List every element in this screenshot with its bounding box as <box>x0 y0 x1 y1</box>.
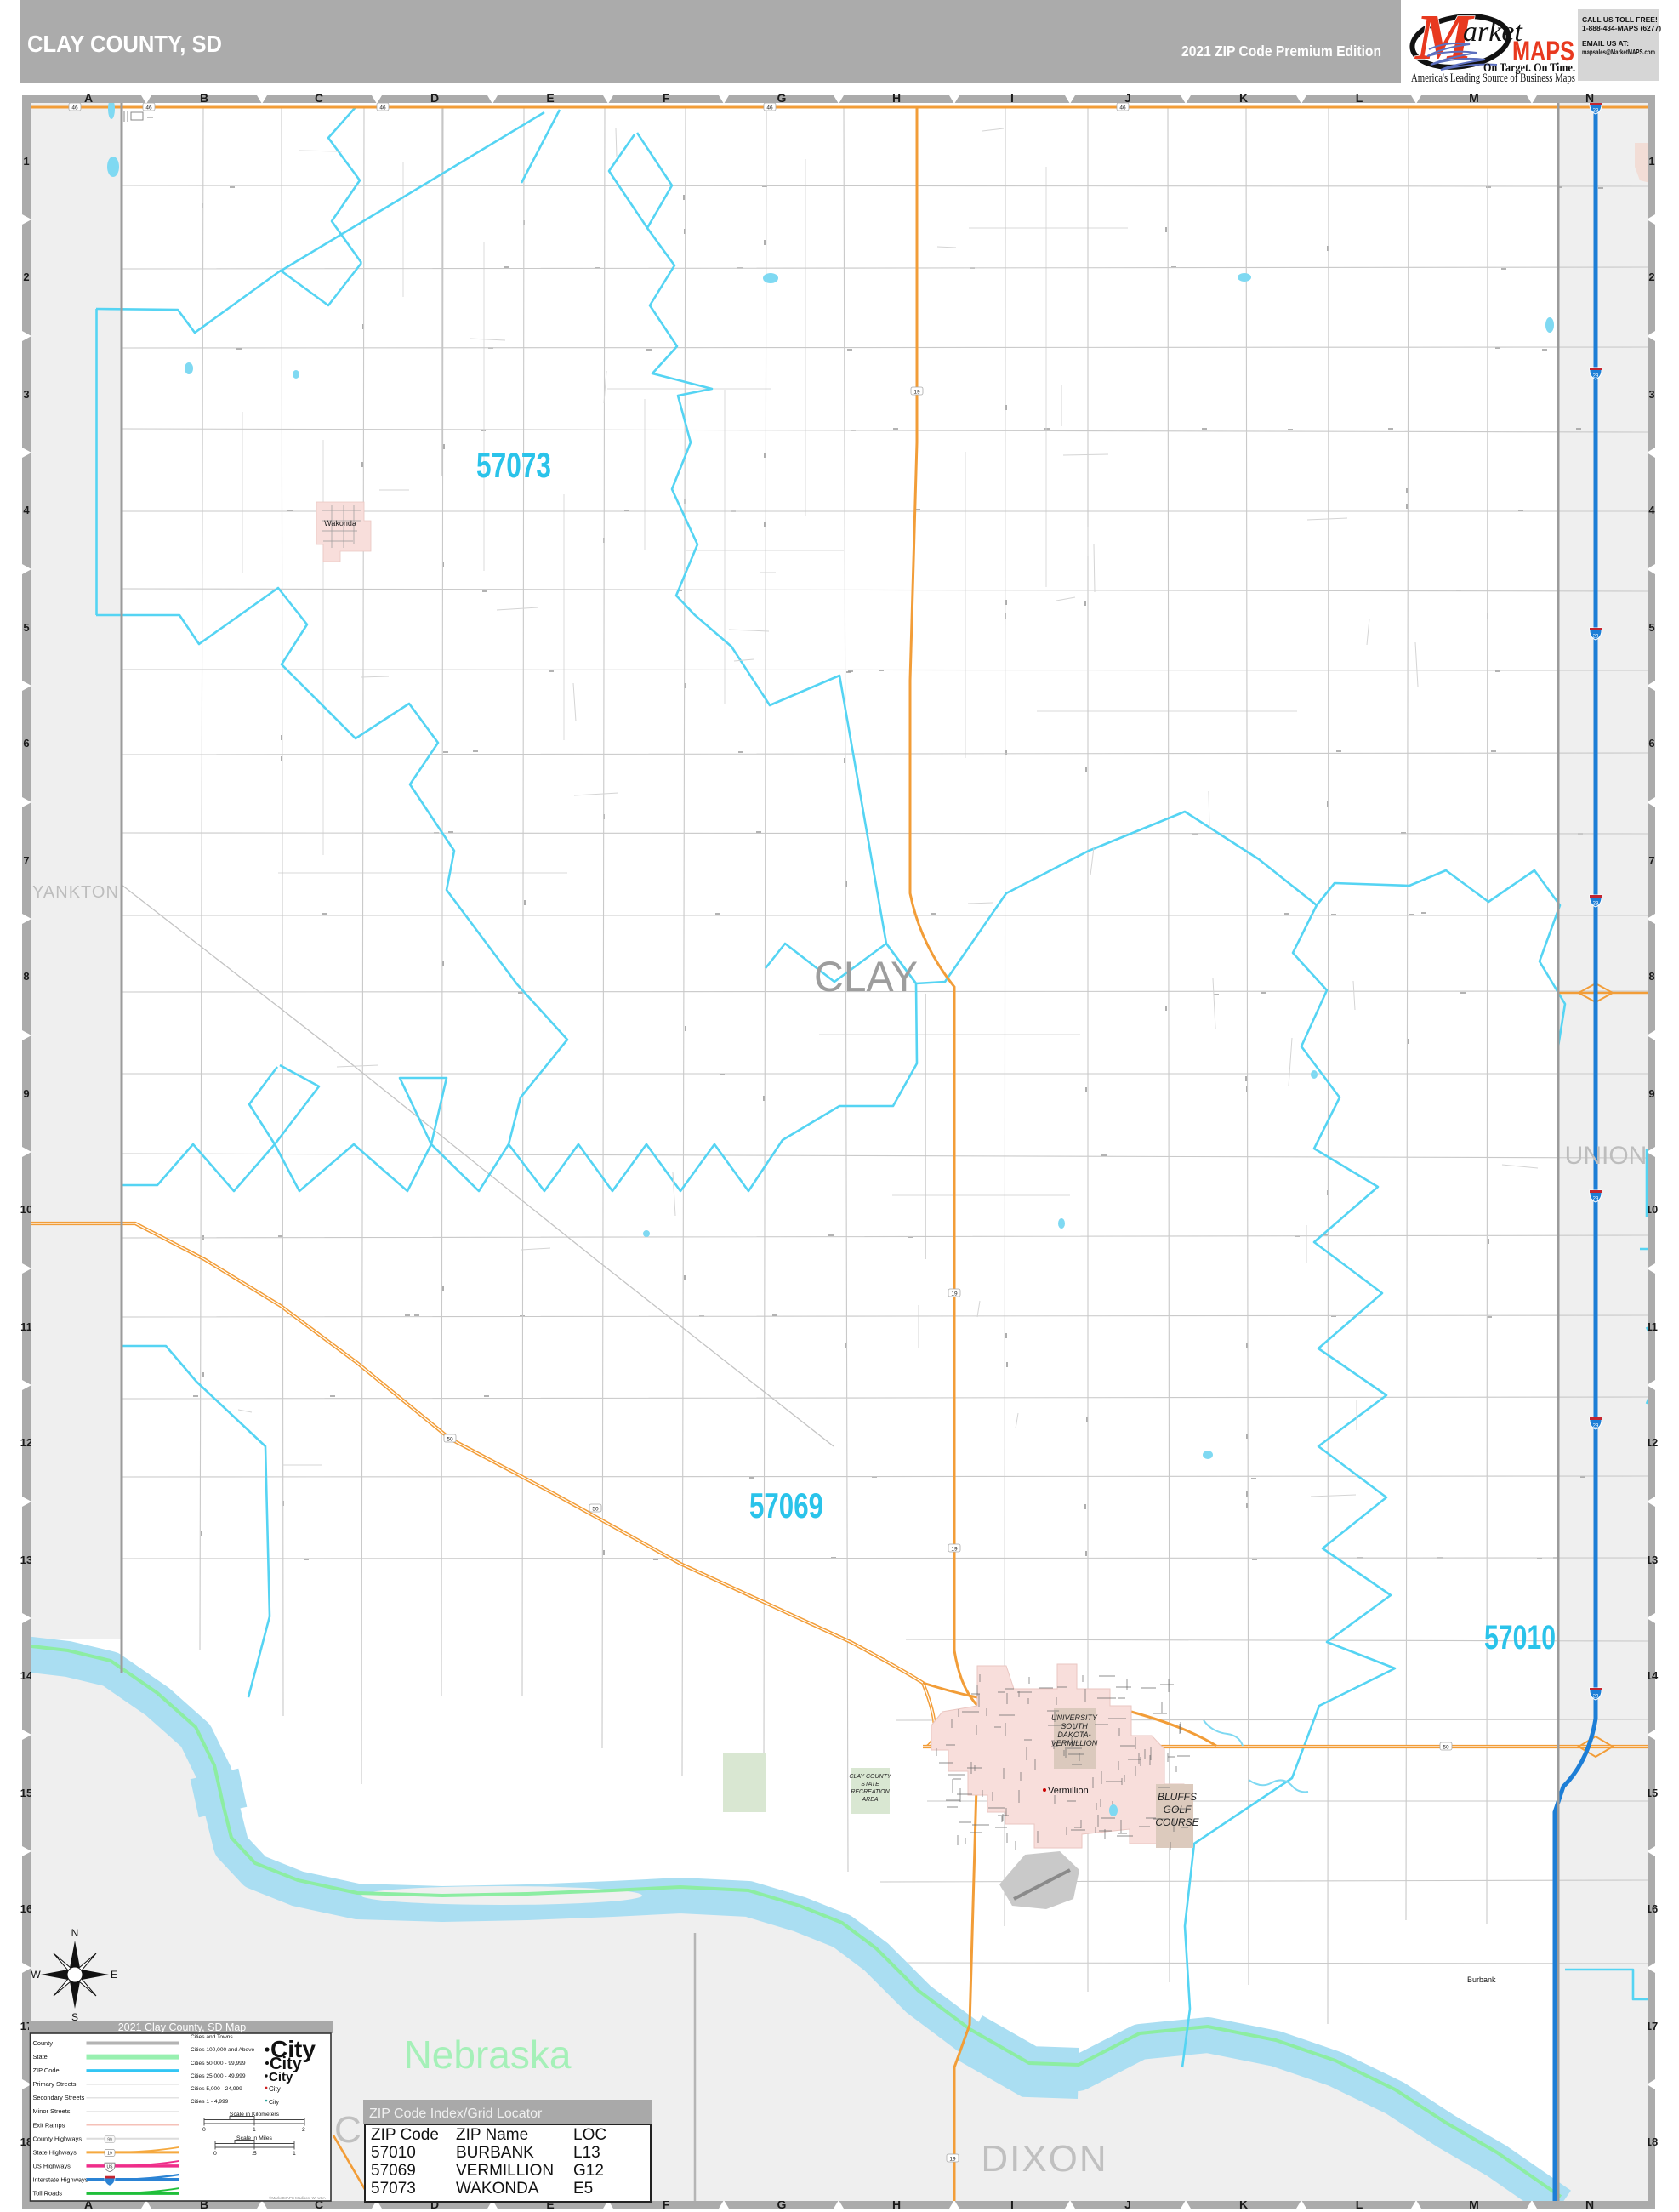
svg-text:19: 19 <box>949 2157 956 2163</box>
svg-text:County: County <box>33 2039 54 2047</box>
svg-text:G: G <box>777 91 787 105</box>
svg-text:11: 11 <box>20 1320 32 1333</box>
svg-text:GOLF: GOLF <box>1164 1804 1192 1816</box>
svg-text:2021 Clay County, SD Map: 2021 Clay County, SD Map <box>118 2021 247 2033</box>
svg-text:Primary Streets: Primary Streets <box>33 2080 77 2088</box>
svg-text:N: N <box>1585 91 1594 105</box>
svg-text:46: 46 <box>145 105 152 111</box>
svg-text:RECREATION: RECREATION <box>851 1789 890 1795</box>
svg-text:K: K <box>1239 91 1248 105</box>
svg-text:2021 ZIP Code Premium Edition: 2021 ZIP Code Premium Edition <box>1181 43 1381 60</box>
svg-text:57010: 57010 <box>1484 1619 1556 1656</box>
svg-text:ZIP Name: ZIP Name <box>456 2126 528 2144</box>
svg-text:57069: 57069 <box>749 1485 823 1525</box>
svg-text:7: 7 <box>1648 854 1654 867</box>
svg-text:BLUFFS: BLUFFS <box>1158 1791 1197 1803</box>
svg-text:America's Leading Source of B: America's Leading Source of Business Map… <box>1411 71 1575 85</box>
svg-text:29: 29 <box>1593 635 1599 640</box>
svg-text:WAKONDA: WAKONDA <box>456 2180 539 2198</box>
svg-text:19: 19 <box>913 390 920 396</box>
svg-text:57073: 57073 <box>371 2180 416 2198</box>
svg-text:Nebraska: Nebraska <box>404 2032 572 2077</box>
svg-text:2: 2 <box>1648 271 1654 283</box>
svg-text:L13: L13 <box>573 2144 600 2162</box>
svg-text:H: H <box>892 91 901 105</box>
svg-text:8: 8 <box>1648 970 1654 983</box>
svg-text:ZIP Code Index/Grid Locator: ZIP Code Index/Grid Locator <box>369 2107 543 2121</box>
svg-text:E5: E5 <box>573 2180 593 2198</box>
svg-text:4: 4 <box>23 504 30 516</box>
svg-text:5: 5 <box>23 621 29 634</box>
svg-text:50: 50 <box>592 1507 599 1513</box>
svg-text:COURSE: COURSE <box>1155 1816 1199 1828</box>
svg-text:7: 7 <box>23 854 29 867</box>
svg-text:CLAY COUNTY, SD: CLAY COUNTY, SD <box>27 31 222 57</box>
svg-text:29: 29 <box>1593 1695 1599 1700</box>
svg-text:50: 50 <box>1443 1745 1449 1751</box>
svg-text:F: F <box>663 91 670 105</box>
svg-text:US Highways: US Highways <box>33 2162 71 2169</box>
svg-text:CALL US TOLL FREE!: CALL US TOLL FREE! <box>1582 15 1658 24</box>
svg-text:Exit Ramps: Exit Ramps <box>33 2121 65 2129</box>
svg-text:A: A <box>84 91 93 105</box>
svg-text:8: 8 <box>23 970 29 983</box>
svg-text:1-888-434-MAPS (6277): 1-888-434-MAPS (6277) <box>1582 24 1661 32</box>
svg-text:57010: 57010 <box>371 2144 416 2162</box>
svg-text:29: 29 <box>1593 1197 1599 1202</box>
svg-text:0: 0 <box>202 2127 206 2133</box>
svg-text:19: 19 <box>107 2152 112 2157</box>
svg-text:46: 46 <box>766 105 773 111</box>
svg-text:Cities and Towns: Cities and Towns <box>191 2034 233 2040</box>
svg-text:E: E <box>111 1969 117 1981</box>
svg-text:mapsales@MarketMAPS.com: mapsales@MarketMAPS.com <box>1582 48 1655 56</box>
svg-text:19: 19 <box>951 1547 958 1553</box>
svg-text:.5: .5 <box>252 2151 257 2157</box>
svg-text:EMAIL US AT:: EMAIL US AT: <box>1582 39 1629 48</box>
svg-text:1: 1 <box>23 155 29 168</box>
svg-text:B: B <box>200 91 208 105</box>
svg-text:S: S <box>71 2011 78 2023</box>
svg-text:ZIP Code: ZIP Code <box>371 2126 439 2144</box>
svg-text:ZIP Code: ZIP Code <box>33 2067 60 2074</box>
svg-text:3: 3 <box>1648 388 1654 401</box>
svg-text:State Highways: State Highways <box>33 2148 77 2156</box>
svg-text:29: 29 <box>1593 109 1599 114</box>
svg-text:57073: 57073 <box>476 445 551 485</box>
svg-text:State: State <box>33 2053 48 2061</box>
svg-text:YANKTON: YANKTON <box>32 883 119 902</box>
svg-text:DAKOTA-: DAKOTA- <box>1057 1730 1090 1739</box>
svg-text:Toll Roads: Toll Roads <box>33 2190 63 2198</box>
svg-text:11: 11 <box>1646 1320 1658 1333</box>
svg-text:9: 9 <box>1648 1087 1654 1100</box>
svg-text:29: 29 <box>1593 374 1599 379</box>
svg-text:Secondary Streets: Secondary Streets <box>33 2094 85 2101</box>
svg-text:29: 29 <box>1593 902 1599 907</box>
svg-text:1: 1 <box>253 2127 256 2133</box>
svg-text:BURBANK: BURBANK <box>456 2144 534 2162</box>
svg-text:W: W <box>31 1969 41 1981</box>
svg-text:2: 2 <box>302 2127 305 2133</box>
svg-text:99: 99 <box>107 2138 112 2143</box>
svg-text:6: 6 <box>23 737 29 750</box>
svg-text:3: 3 <box>23 388 29 401</box>
svg-text:50: 50 <box>447 1437 453 1443</box>
svg-text:UNION: UNION <box>1565 1142 1648 1170</box>
svg-text:AREA: AREA <box>861 1797 878 1803</box>
svg-text:46: 46 <box>1119 105 1126 111</box>
svg-text:Wakonda: Wakonda <box>324 519 356 527</box>
svg-text:LOC: LOC <box>573 2126 606 2144</box>
svg-text:1: 1 <box>1648 155 1654 168</box>
svg-text:14: 14 <box>1646 1669 1659 1682</box>
svg-text:J: J <box>1124 91 1131 105</box>
svg-text:County Highways: County Highways <box>33 2135 83 2142</box>
svg-text:C: C <box>315 91 323 105</box>
svg-text:City: City <box>269 2100 280 2106</box>
svg-text:19: 19 <box>951 1291 958 1297</box>
svg-text:Cities 5,000 - 24,999: Cities 5,000 - 24,999 <box>191 2086 242 2092</box>
svg-text:6: 6 <box>1648 737 1654 750</box>
svg-text:Vermillion: Vermillion <box>1048 1786 1089 1796</box>
svg-text:STATE: STATE <box>861 1782 879 1787</box>
svg-text:UNIVERSITY: UNIVERSITY <box>1051 1713 1098 1722</box>
svg-text:E: E <box>546 91 554 105</box>
svg-text:Cities 50,000 - 99,999: Cities 50,000 - 99,999 <box>191 2061 246 2067</box>
svg-text:Cities 1 - 4,999: Cities 1 - 4,999 <box>191 2099 229 2105</box>
svg-text:US: US <box>107 2165 114 2170</box>
svg-text:D: D <box>430 91 439 105</box>
svg-text:SOUTH: SOUTH <box>1061 1722 1088 1730</box>
svg-text:2: 2 <box>23 271 29 283</box>
svg-text:46: 46 <box>71 105 78 111</box>
svg-text:1: 1 <box>293 2151 296 2157</box>
svg-text:Cities 100,000 and Above: Cities 100,000 and Above <box>191 2047 254 2053</box>
svg-text:57069: 57069 <box>371 2162 416 2180</box>
svg-text:City: City <box>269 2085 281 2093</box>
svg-text:VERMILLION: VERMILLION <box>1051 1739 1098 1747</box>
svg-text:©MarketMAPS Madison, WI USA: ©MarketMAPS Madison, WI USA <box>269 2195 326 2200</box>
svg-text:G12: G12 <box>573 2162 604 2180</box>
svg-text:46: 46 <box>379 105 386 111</box>
svg-text:4: 4 <box>1648 504 1655 516</box>
svg-text:Burbank: Burbank <box>1467 1975 1496 1984</box>
svg-text:L: L <box>1356 91 1363 105</box>
svg-text:CLAY COUNTY: CLAY COUNTY <box>849 1774 891 1780</box>
svg-text:Cities 25,000 - 49,999: Cities 25,000 - 49,999 <box>191 2073 246 2079</box>
svg-text:5: 5 <box>1648 621 1654 634</box>
svg-text:VERMILLION: VERMILLION <box>456 2162 554 2180</box>
svg-text:DIXON: DIXON <box>981 2138 1107 2180</box>
svg-text:0: 0 <box>213 2151 217 2157</box>
svg-text:N: N <box>71 1927 79 1939</box>
svg-text:City: City <box>269 2070 293 2084</box>
svg-text:Interstate Highways: Interstate Highways <box>33 2176 88 2184</box>
svg-text:I: I <box>1010 91 1014 105</box>
svg-text:M: M <box>1469 91 1479 105</box>
svg-text:29: 29 <box>1593 1424 1599 1429</box>
svg-text:CLAY: CLAY <box>814 953 918 1001</box>
svg-text:Minor Streets: Minor Streets <box>33 2107 71 2115</box>
svg-text:9: 9 <box>23 1087 29 1100</box>
